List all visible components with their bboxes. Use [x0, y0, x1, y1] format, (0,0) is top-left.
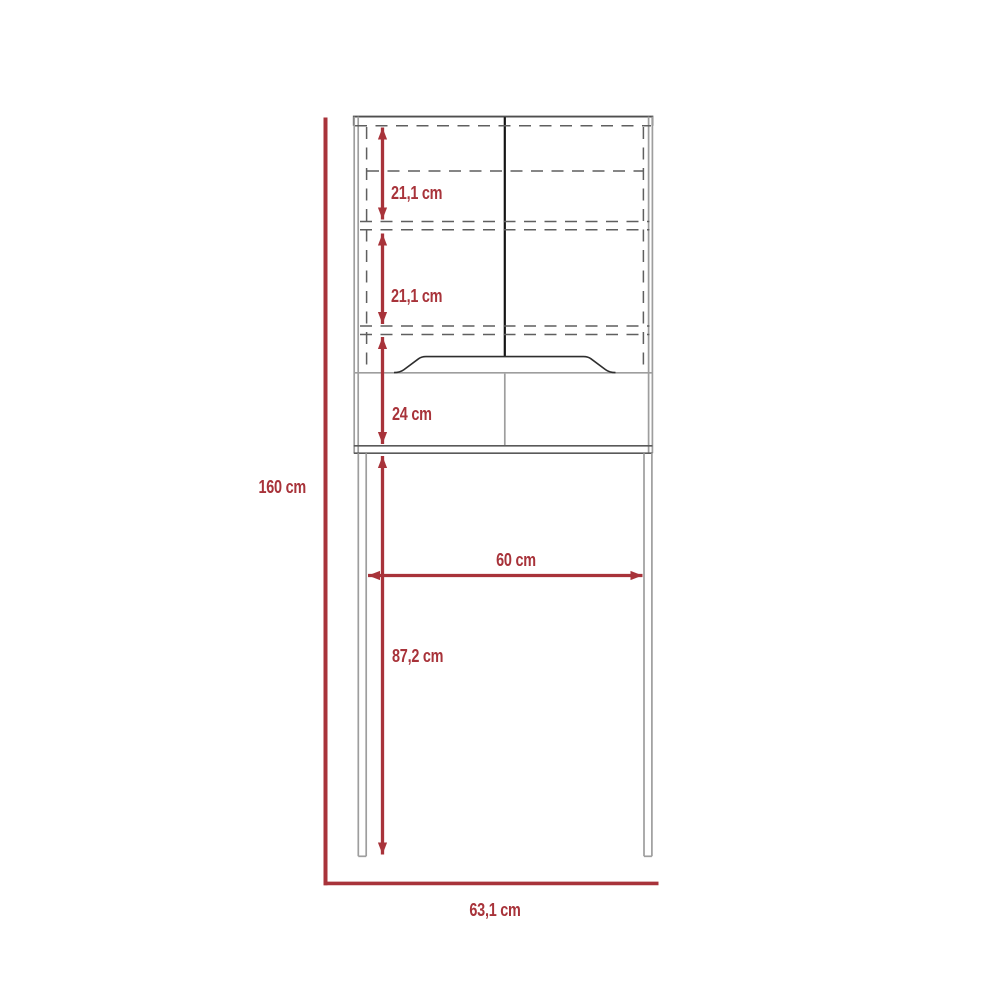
right-leg: [644, 453, 652, 856]
under-clearance-height-label: 87,2 cm: [392, 645, 443, 666]
furniture-dimension-diagram: 21,1 cm 21,1 cm 24 cm 60 cm 87,2 cm 160 …: [0, 0, 1000, 1000]
left-leg: [358, 453, 366, 856]
dimension-labels: 21,1 cm 21,1 cm 24 cm 60 cm 87,2 cm 160 …: [258, 182, 535, 920]
overall-height-label: 160 cm: [258, 476, 306, 497]
open-compartment-height-label: 24 cm: [392, 403, 432, 424]
diagram-canvas: 21,1 cm 21,1 cm 24 cm 60 cm 87,2 cm 160 …: [0, 0, 1000, 1000]
overall-dimension-guides: [324, 118, 659, 886]
shelf-gap-top-label: 21,1 cm: [391, 182, 442, 203]
shelf-gap-middle-label: 21,1 cm: [391, 285, 442, 306]
hidden-lines: [355, 126, 651, 371]
door-handle-cutout: [394, 357, 616, 373]
inner-clearance-width-label: 60 cm: [496, 549, 536, 570]
cabinet-outline: [354, 117, 653, 857]
cabinet-top-panel: [354, 117, 653, 126]
overall-width-label: 63,1 cm: [469, 899, 520, 920]
